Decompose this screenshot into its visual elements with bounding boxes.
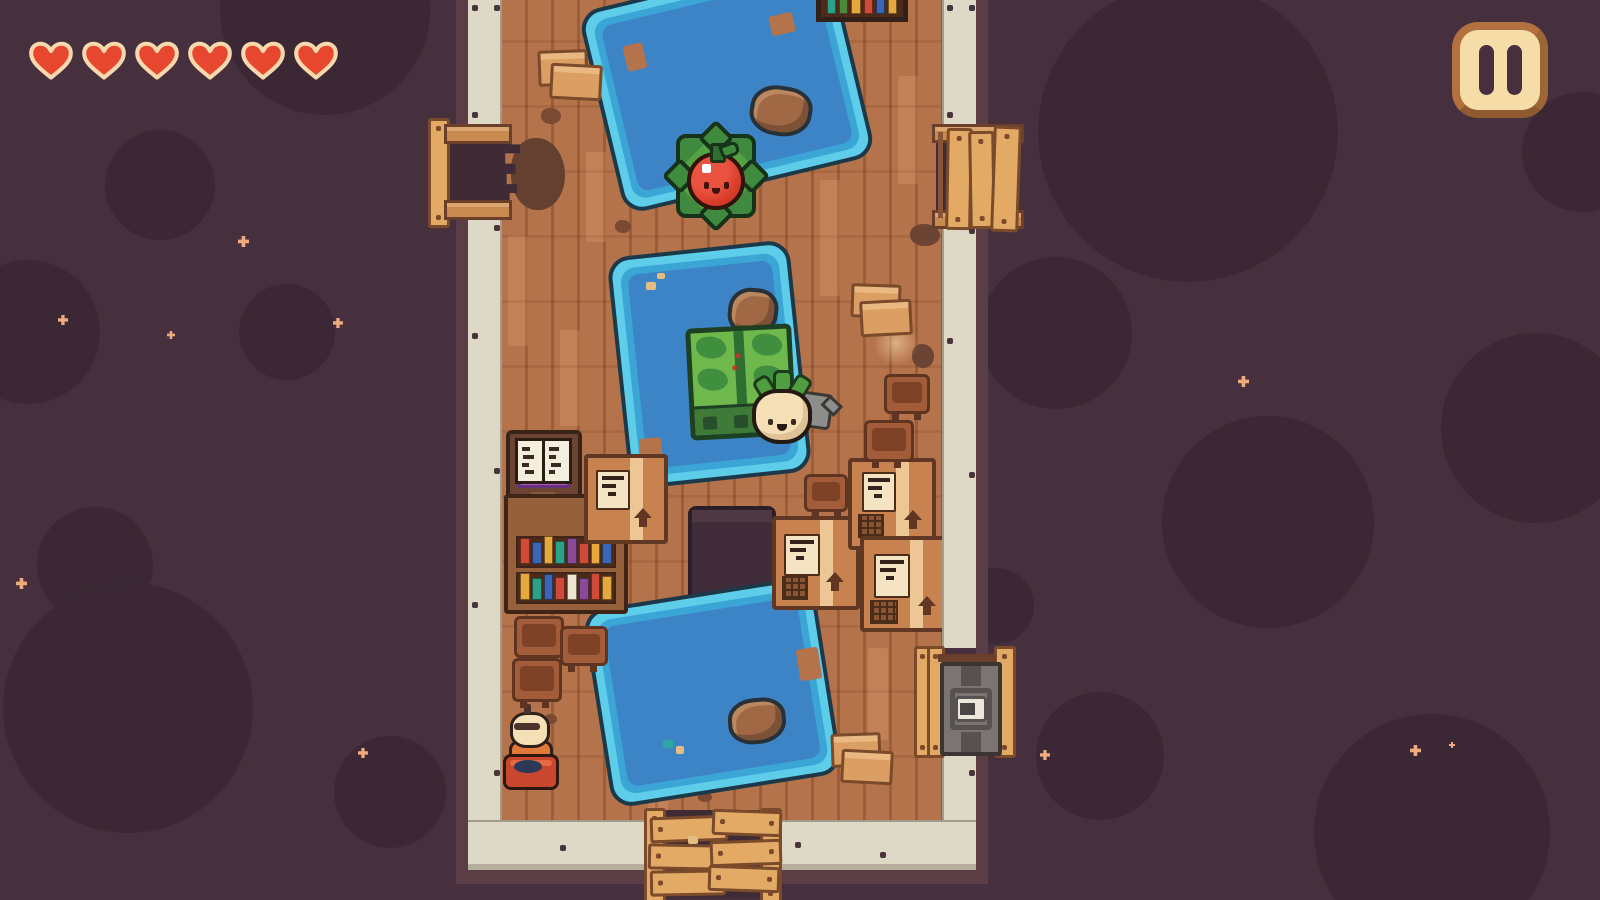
pause-icon <box>1479 45 1494 95</box>
boarding-plank <box>990 126 1022 233</box>
book-spine <box>851 0 860 14</box>
paper-stack <box>840 749 894 786</box>
fragile-stamp <box>870 600 898 624</box>
debris <box>663 740 673 748</box>
paper-stack <box>549 63 603 102</box>
cardboard-box <box>860 536 950 632</box>
floor-stain <box>615 220 631 233</box>
book-spine <box>591 573 601 600</box>
floor-plank <box>586 152 606 242</box>
left-doorway-opening <box>446 138 520 202</box>
shipping-label <box>874 554 910 598</box>
boarding-plank <box>710 839 783 867</box>
tomato-stem <box>710 143 726 163</box>
book-spine <box>839 0 848 14</box>
book-spine <box>827 0 836 14</box>
shipping-label <box>596 470 630 510</box>
tomato-character <box>687 152 745 210</box>
shipping-label <box>784 534 820 576</box>
this-way-up-icon <box>634 508 652 518</box>
open-book-right-page <box>542 438 572 484</box>
book-spine <box>567 538 577 564</box>
book-spine <box>520 573 530 600</box>
shipping-label <box>862 472 896 512</box>
bird-on-nest <box>498 706 560 788</box>
fragile-stamp <box>858 514 884 538</box>
hatch-lintel <box>938 654 996 662</box>
top-bookshelf <box>816 0 908 22</box>
floor-plank <box>560 330 580 426</box>
debris <box>646 282 656 290</box>
floor-plank <box>898 76 918 184</box>
game-screen <box>0 0 1600 900</box>
cardboard-box <box>772 516 860 610</box>
book-spine <box>555 577 565 600</box>
book-spine <box>579 543 589 564</box>
pool-water <box>604 597 822 788</box>
boarding-plank <box>712 809 783 837</box>
paper-stack <box>859 299 913 338</box>
book-spine <box>532 578 542 600</box>
book-spine <box>544 574 554 600</box>
stool <box>884 374 930 414</box>
book-spine <box>544 536 554 564</box>
turnip-character <box>746 372 814 450</box>
wall-left <box>468 0 502 124</box>
floor-plank <box>820 180 840 296</box>
book-spine <box>876 0 885 14</box>
book-spine <box>864 0 873 14</box>
book-spine <box>532 542 542 564</box>
wall-right <box>942 0 976 124</box>
this-way-up-icon <box>904 510 922 520</box>
book-spine <box>555 541 565 564</box>
stool <box>804 474 848 512</box>
stool <box>512 658 562 702</box>
book-spine <box>520 538 530 564</box>
wall-right <box>942 752 976 820</box>
debris <box>676 746 684 754</box>
bookshelf-row <box>516 572 616 604</box>
book-spine <box>567 574 577 600</box>
wall-right <box>942 216 976 648</box>
pool-rip <box>796 646 823 681</box>
debris <box>688 836 698 844</box>
door-beam <box>444 124 512 144</box>
door-stick <box>938 132 943 218</box>
stool <box>864 420 914 462</box>
book-spine <box>579 578 589 600</box>
fragile-stamp <box>782 576 808 600</box>
metal-floor-hatch <box>940 662 1002 756</box>
stool <box>560 626 608 666</box>
book-spine <box>602 576 612 600</box>
this-way-up-icon <box>918 596 936 606</box>
floor-plank <box>508 236 528 346</box>
open-book-left-page <box>515 438 545 484</box>
stool <box>514 616 564 658</box>
book-spine <box>888 0 897 14</box>
door-beam <box>444 200 512 220</box>
floor-stain <box>541 108 561 124</box>
floor-plank <box>868 648 888 740</box>
pause-button[interactable] <box>1452 22 1548 118</box>
this-way-up-icon <box>826 572 844 582</box>
lectern-with-open-book <box>506 430 582 500</box>
boarding-plank <box>708 865 781 893</box>
wall-left <box>468 216 502 820</box>
cardboard-box <box>584 454 668 544</box>
debris <box>657 273 665 279</box>
turnip-body <box>752 389 812 444</box>
pause-icon <box>1507 45 1522 95</box>
room <box>0 0 1600 900</box>
